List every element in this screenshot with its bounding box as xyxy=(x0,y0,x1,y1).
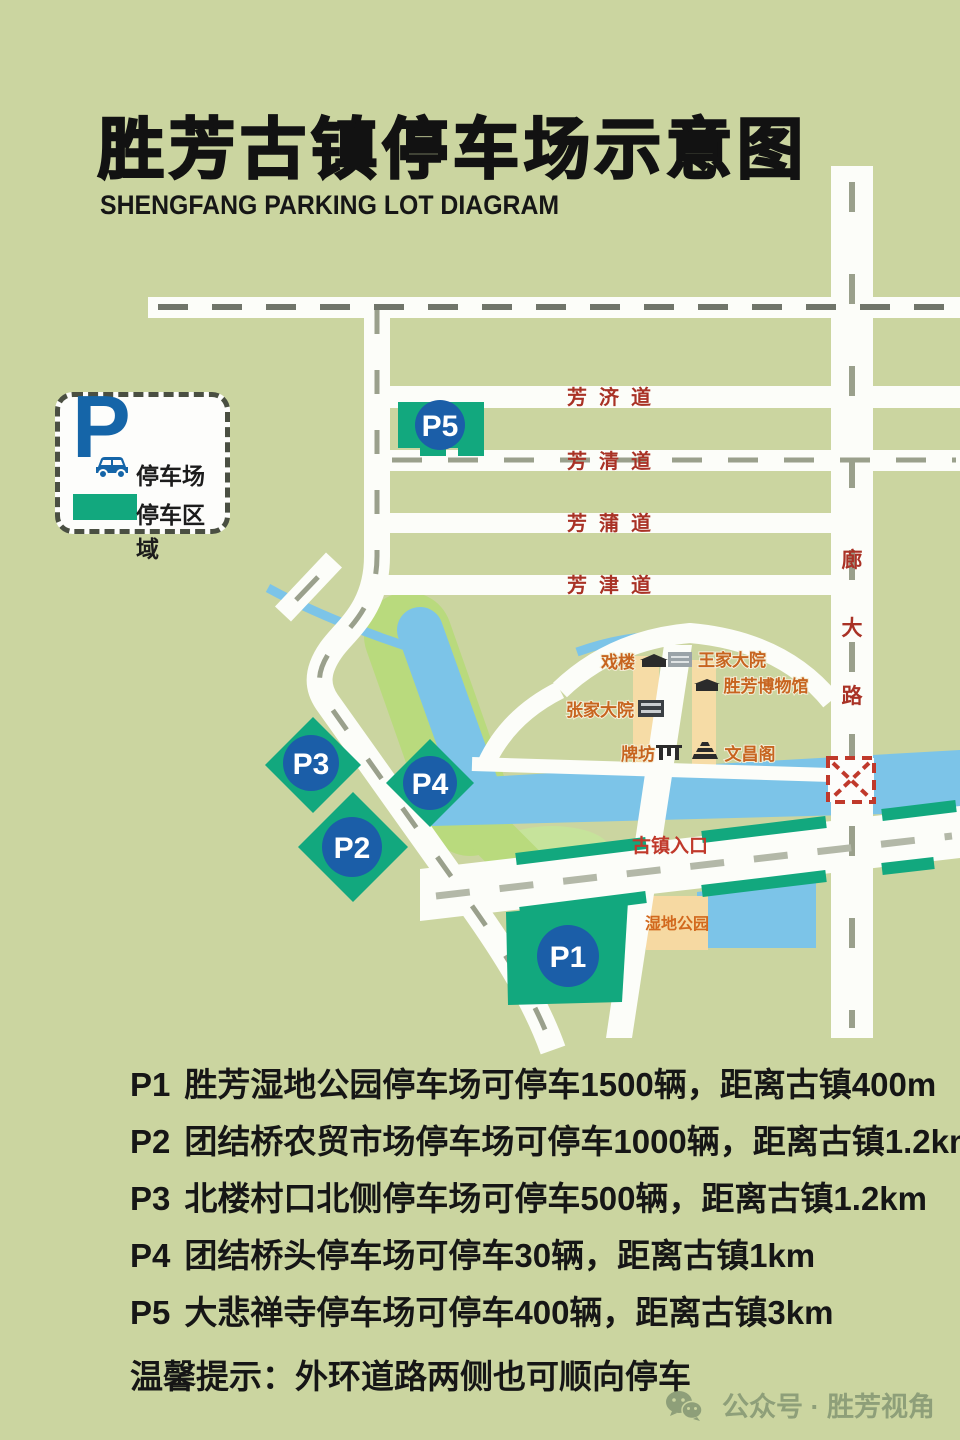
legend-box: P 停车场 停车区域 xyxy=(55,392,230,534)
marker-p2: P2 xyxy=(322,817,382,877)
road-fangpu-label: 芳蒲道 xyxy=(567,511,663,535)
note-p5: P5大悲禅寺停车场可停车400辆，距离古镇3km xyxy=(130,1286,833,1334)
wetland-label: 湿地公园 xyxy=(644,914,709,933)
paifang-label: 牌坊 xyxy=(621,744,655,764)
entrance-label: 古镇入口 xyxy=(632,834,708,857)
page-subtitle: SHENGFANG PARKING LOT DIAGRAM xyxy=(100,190,559,221)
marker-p1: P1 xyxy=(537,925,599,987)
svg-text:P5: P5 xyxy=(422,410,459,443)
svg-text:路: 路 xyxy=(842,684,864,708)
road-fangqing-label: 芳清道 xyxy=(567,449,663,473)
marker-p4: P4 xyxy=(403,756,457,810)
svg-text:P3: P3 xyxy=(293,748,330,781)
note-p2: P2团结桥农贸市场停车场可停车1000辆，距离古镇1.2km xyxy=(130,1115,960,1163)
note-p4: P4团结桥头停车场可停车30辆，距离古镇1km xyxy=(130,1229,815,1277)
svg-text:P2: P2 xyxy=(334,832,371,865)
note-p1: P1胜芳湿地公园停车场可停车1500辆，距离古镇400m xyxy=(130,1058,936,1106)
parking-area-swatch xyxy=(73,494,137,520)
road-fangji-label: 芳济道 xyxy=(567,385,663,409)
zhangjia-courtyard-icon xyxy=(638,700,664,717)
footer: 公众号 · 胜芳视角 xyxy=(0,1385,935,1429)
museum-label: 胜芳博物馆 xyxy=(724,676,809,696)
zhangjia-label: 张家大院 xyxy=(566,700,634,720)
svg-text:廊: 廊 xyxy=(842,548,863,572)
wenchang-label: 文昌阁 xyxy=(725,744,776,764)
closed-crossing-marker xyxy=(828,758,874,802)
legend-parking-area-label: 停车区域 xyxy=(136,496,225,564)
car-icon xyxy=(94,453,130,484)
legend-parking-lot-label: 停车场 xyxy=(136,457,205,491)
footer-label: 公众号 · 胜芳视角 xyxy=(722,1392,935,1422)
svg-text:大: 大 xyxy=(842,617,863,640)
xilou-label: 戏楼 xyxy=(600,652,635,672)
road-fangjin-label: 芳津道 xyxy=(567,573,663,597)
page-title: 胜芳古镇停车场示意图 xyxy=(98,96,878,192)
wechat-icon xyxy=(664,1390,704,1429)
note-p3: P3北楼村口北侧停车场可停车500辆，距离古镇1.2km xyxy=(130,1172,927,1220)
svg-text:P4: P4 xyxy=(412,768,449,801)
svg-text:P1: P1 xyxy=(550,941,587,974)
wangjia-label: 王家大院 xyxy=(698,650,766,670)
marker-p3: P3 xyxy=(283,735,339,791)
wangjia-courtyard-icon xyxy=(668,652,692,667)
marker-p5: P5 xyxy=(415,400,465,450)
